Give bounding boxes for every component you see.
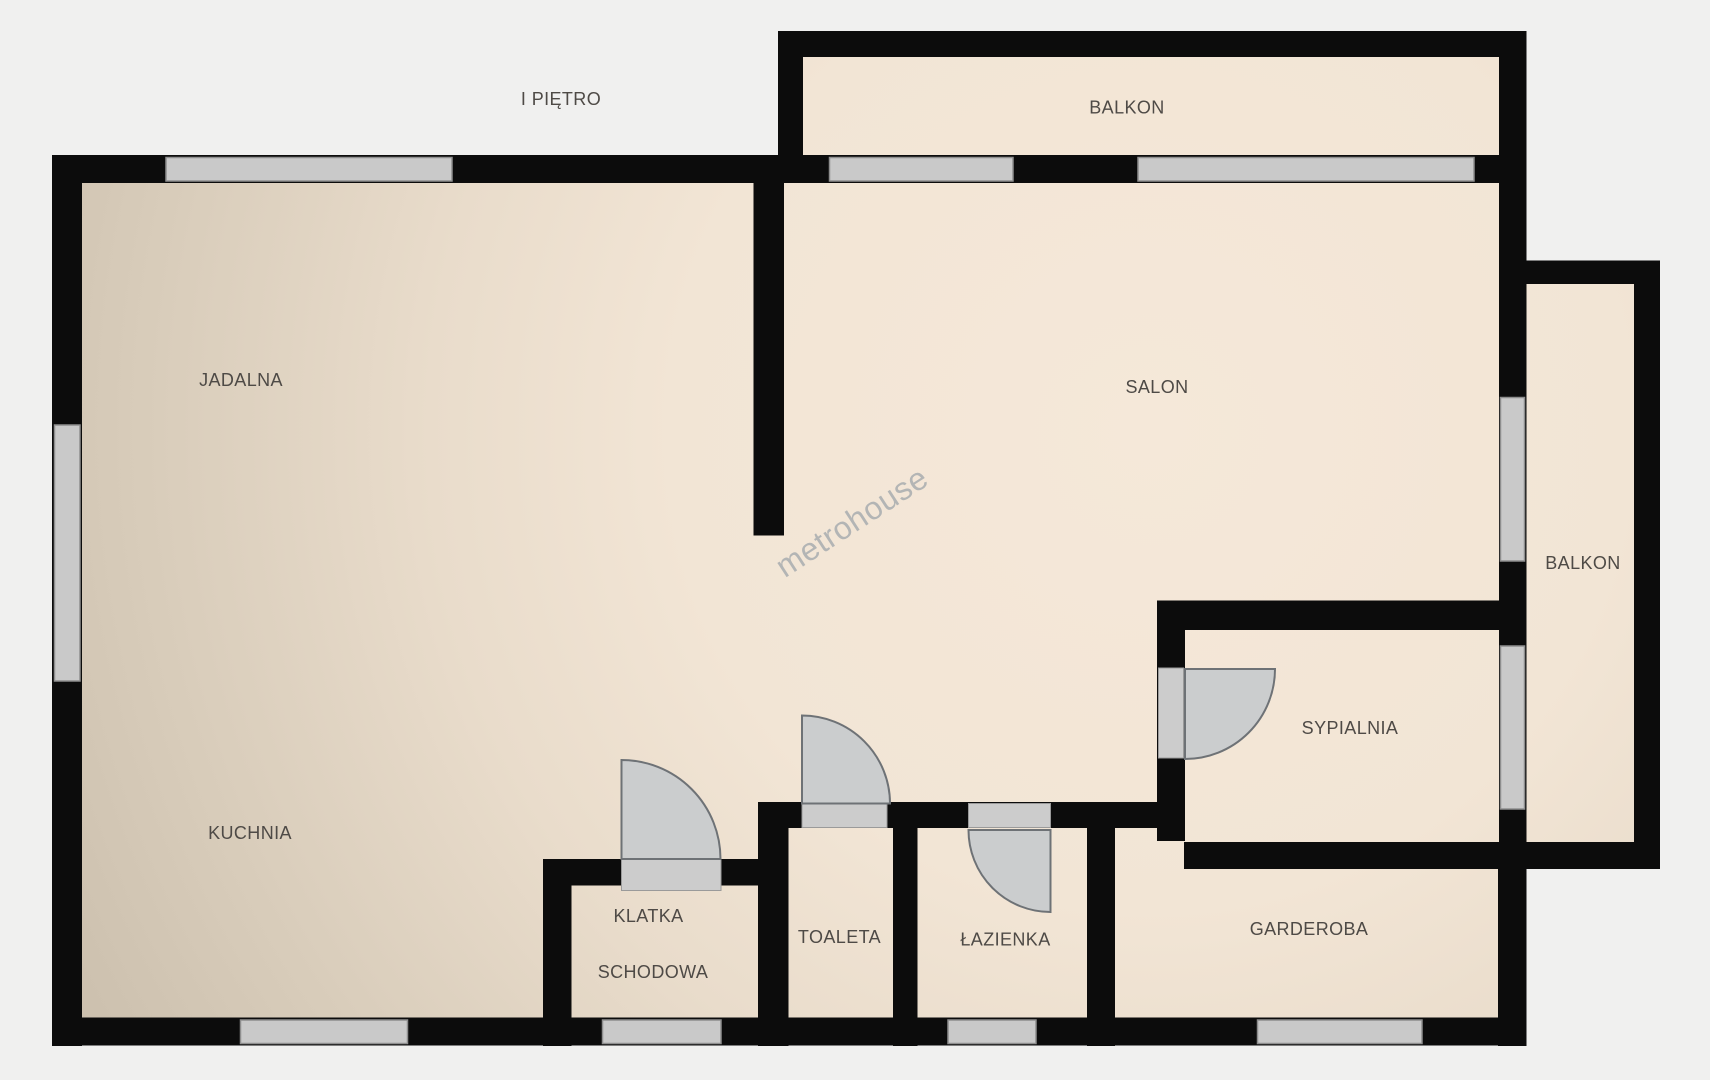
svg-text:JADALNA: JADALNA: [199, 370, 283, 390]
svg-text:KLATKA: KLATKA: [613, 906, 683, 926]
svg-text:BALKON: BALKON: [1545, 553, 1620, 573]
svg-text:GARDEROBA: GARDEROBA: [1250, 919, 1369, 939]
svg-text:I PIĘTRO: I PIĘTRO: [521, 89, 601, 109]
svg-text:BALKON: BALKON: [1089, 98, 1164, 118]
svg-text:SCHODOWA: SCHODOWA: [598, 962, 709, 982]
svg-text:SYPIALNIA: SYPIALNIA: [1302, 718, 1399, 738]
svg-text:SALON: SALON: [1125, 377, 1188, 397]
svg-text:KUCHNIA: KUCHNIA: [208, 823, 292, 843]
svg-text:ŁAZIENKA: ŁAZIENKA: [960, 930, 1050, 950]
svg-text:TOALETA: TOALETA: [798, 927, 881, 947]
